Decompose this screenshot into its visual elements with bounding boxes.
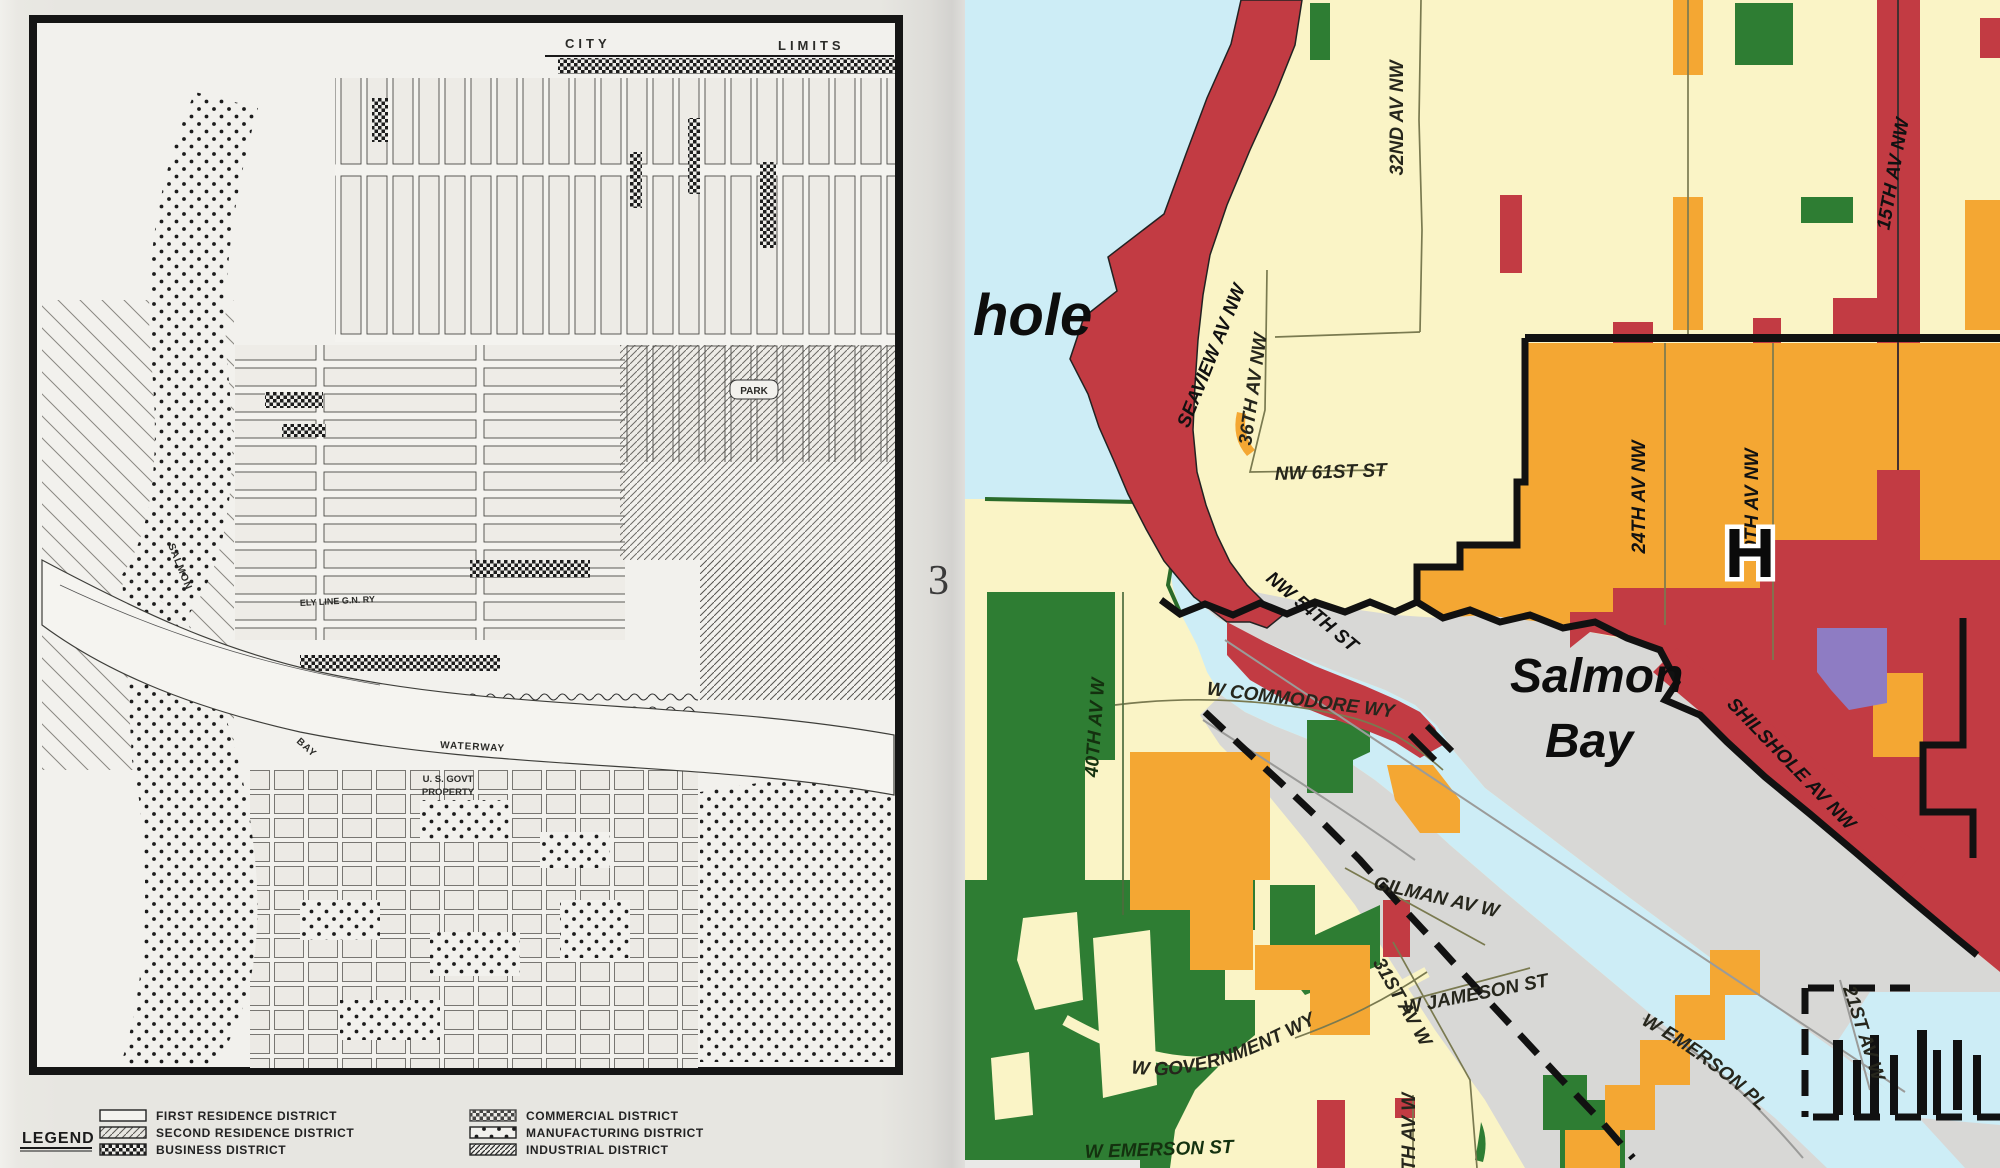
page-number: 3 — [928, 558, 949, 604]
city-limits-label-city: CITY — [565, 36, 611, 51]
right-page: SEAVIEW AV NW 32ND AV NW 36TH AV NW NW 6… — [965, 0, 2000, 1168]
left-page: CITY LIMITS SALMON BAY WATERWAY U. S. GO… — [0, 0, 965, 1168]
govt-property-label-1: U. S. GOVT — [423, 774, 474, 785]
vintage-zoning-map: CITY LIMITS SALMON BAY WATERWAY U. S. GO… — [0, 0, 965, 1168]
street-label-nw61st: NW 61ST ST — [1274, 460, 1388, 485]
legend-swatch-industrial — [470, 1144, 516, 1155]
scan-edge-strip — [965, 1160, 1140, 1168]
district-pattern-blocks — [42, 56, 895, 1068]
legend-item-industrial: INDUSTRIAL DISTRICT — [526, 1143, 669, 1157]
salmon-label: Salmon — [1510, 650, 1683, 703]
shilshole-partial-label: hole — [973, 283, 1092, 348]
legend-swatch-second-residence — [100, 1127, 146, 1138]
legend-title: LEGEND — [22, 1130, 95, 1147]
bay-label: Bay — [1545, 715, 1635, 768]
legend-swatch-business — [100, 1144, 146, 1155]
street-label-24th: 24TH AV NW — [1629, 438, 1650, 554]
legend-swatch-commercial — [470, 1110, 516, 1121]
two-page-map-scan: CITY LIMITS SALMON BAY WATERWAY U. S. GO… — [0, 0, 2000, 1168]
legend-swatch-manufacturing — [470, 1127, 516, 1138]
legend-swatch-first-residence — [100, 1110, 146, 1121]
hospital-icon: H — [1725, 514, 1776, 592]
city-limits-label-limits: LIMITS — [778, 38, 845, 53]
legend-item-second-residence: SECOND RESIDENCE DISTRICT — [156, 1126, 354, 1140]
legend-item-commercial: COMMERCIAL DISTRICT — [526, 1109, 679, 1123]
legend-item-manufacturing: MANUFACTURING DISTRICT — [526, 1126, 704, 1140]
street-label-34th: 34TH AV W — [1399, 1091, 1420, 1168]
street-label-32nd: 32ND AV NW — [1387, 58, 1408, 175]
color-zoning-map: SEAVIEW AV NW 32ND AV NW 36TH AV NW NW 6… — [965, 0, 2000, 1168]
legend: LEGEND FIRST RESIDENCE DISTRICT SECOND R… — [20, 1109, 704, 1157]
legend-item-first-residence: FIRST RESIDENCE DISTRICT — [156, 1109, 337, 1123]
govt-property-label-2: PROPERTY — [422, 787, 475, 798]
park-label: PARK — [740, 386, 768, 397]
legend-item-business: BUSINESS DISTRICT — [156, 1143, 286, 1157]
